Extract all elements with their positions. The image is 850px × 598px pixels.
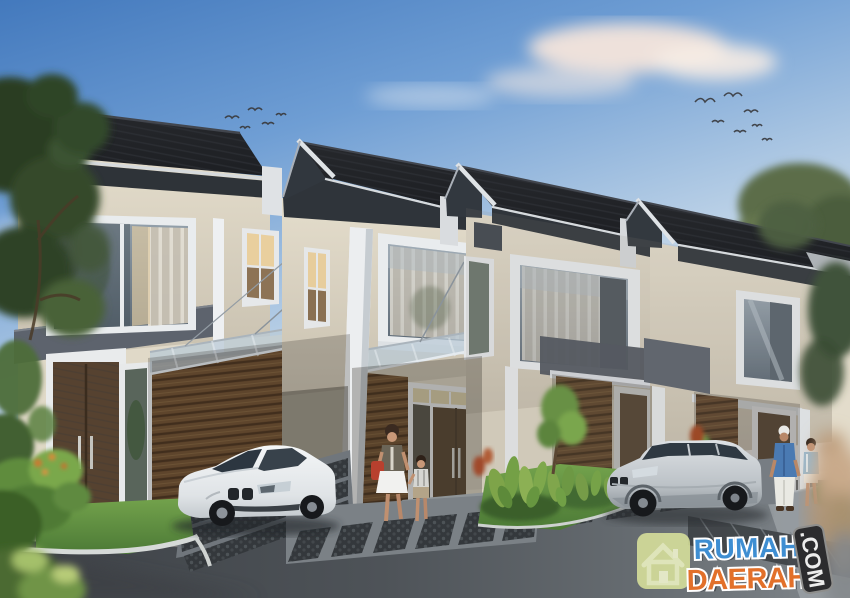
svg-text:DAERAH: DAERAH <box>686 562 808 597</box>
svg-text:RUMAH: RUMAH <box>693 531 800 565</box>
